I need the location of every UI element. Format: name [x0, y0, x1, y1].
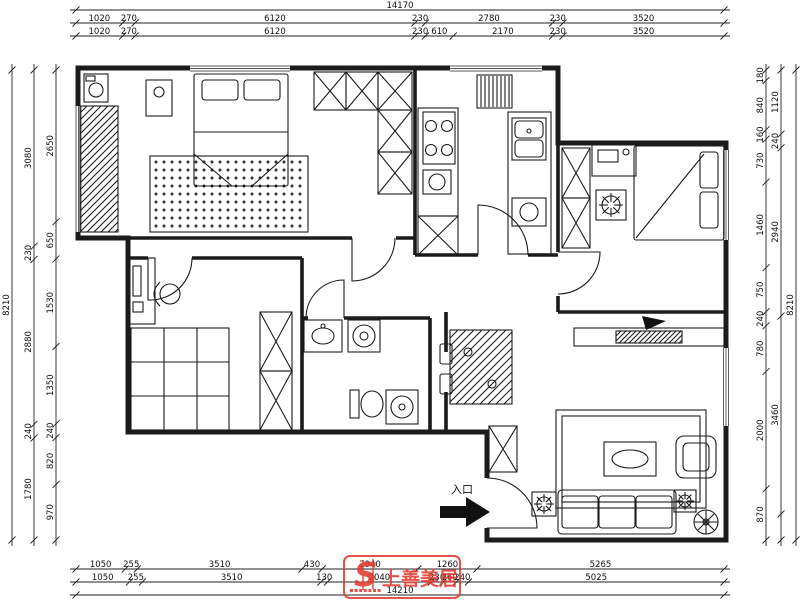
- dim-label: 14170: [386, 1, 413, 11]
- coffee-table-icon: [604, 442, 656, 476]
- dim-label: 870: [756, 506, 766, 522]
- dim-label: 240: [46, 423, 56, 439]
- cabinet-x-icon: [260, 312, 292, 371]
- dim-label: 130: [316, 573, 332, 583]
- cabinet-x-icon: [378, 110, 412, 152]
- door-bath: [306, 280, 344, 318]
- dim-label: 1050: [90, 560, 112, 570]
- cabinet-x-icon: [562, 198, 590, 248]
- dim-label: 650: [46, 232, 56, 248]
- chair-icon: [154, 282, 180, 306]
- bedroom-2: [562, 144, 724, 248]
- dimension-layer: 1417010202706120230278023035201020270612…: [2, 1, 800, 599]
- floorplan-drawing: 1417010202706120230278023035201020270612…: [0, 0, 800, 600]
- dining-area: [440, 330, 512, 404]
- dim-label: 8210: [786, 294, 796, 316]
- bookshelf-icon: [131, 328, 229, 430]
- nightstand-lamp-icon: [596, 190, 626, 220]
- dim-label: 6120: [264, 14, 286, 24]
- toilet-icon: [350, 390, 383, 418]
- dim-label: 230: [24, 245, 34, 261]
- dim-chain-top_row2: 1020270612023027802303520: [70, 14, 730, 27]
- dim-label: 1020: [89, 14, 111, 24]
- dim-label: 240: [24, 423, 34, 439]
- desk-icon: [592, 144, 636, 176]
- dim-chain-right_mid: 112024029403460: [771, 64, 785, 546]
- dim-chain-top_total: 14170: [70, 1, 730, 14]
- desk-icon: [129, 258, 155, 324]
- cabinet-x-icon: [260, 371, 292, 430]
- dim-label: 3510: [209, 560, 231, 570]
- dim-label: 2000: [756, 419, 766, 441]
- dim-label: 5265: [590, 560, 612, 570]
- dim-label: 6120: [264, 27, 286, 37]
- closet-hatch: [80, 106, 118, 232]
- kitchen-appliance-icon: [512, 198, 546, 226]
- side-table-icon: [146, 80, 172, 116]
- bathroom: [304, 320, 418, 424]
- dim-label: 5025: [585, 573, 607, 583]
- duct-x-icon: [418, 216, 458, 255]
- dim-chain-right_outer: 8210: [786, 64, 800, 546]
- dim-label: 1020: [89, 27, 111, 37]
- dim-label: 1120: [771, 91, 781, 113]
- living-room: [489, 316, 724, 534]
- cabinet-x-icon: [346, 72, 378, 110]
- sofa-icon: [558, 490, 676, 534]
- door-bedroom2: [558, 252, 600, 294]
- wardrobe-cabinets: [314, 72, 412, 194]
- kitchen: [418, 75, 551, 255]
- rug-dotted: [150, 156, 308, 232]
- door-master: [352, 238, 395, 281]
- lamp-table-icon: [674, 490, 696, 512]
- dim-label: 255: [128, 573, 144, 583]
- washing-machine-icon: [84, 74, 108, 102]
- sink-icon: [512, 118, 546, 160]
- dim-label: 780: [756, 341, 766, 357]
- dining-table-icon: [450, 330, 512, 404]
- plan-geometry: [74, 64, 730, 540]
- dim-label: 255: [123, 560, 139, 570]
- bed-icon: [634, 146, 724, 240]
- dim-chain-top_row3: 1020270612023061021702303520: [70, 27, 730, 40]
- cabinet-x-icon: [562, 148, 590, 198]
- dim-chain-left_inner: 265065015301350240820970: [46, 64, 60, 546]
- dim-label: 1780: [24, 478, 34, 500]
- tv-icon: [616, 331, 682, 343]
- dim-label: 730: [756, 153, 766, 169]
- dim-label: 820: [46, 453, 56, 469]
- dim-label: 1350: [46, 374, 56, 396]
- windows: [74, 64, 730, 426]
- round-sink-icon: [386, 390, 418, 424]
- study-room: [129, 258, 292, 430]
- armchair-icon: [676, 436, 716, 478]
- dim-label: 3080: [24, 147, 34, 169]
- master-bedroom: [80, 74, 308, 232]
- double-bed-icon: [194, 74, 288, 186]
- vanity-sink-icon: [304, 320, 342, 352]
- dim-chain-left_outer: 8210: [2, 64, 16, 546]
- cabinet-x-icon: [314, 72, 346, 110]
- dim-label: 240: [756, 311, 766, 327]
- cabinet-x-icon: [378, 72, 412, 110]
- dim-label: 2780: [478, 14, 500, 24]
- dim-label: 1460: [756, 214, 766, 236]
- fan-icon: [694, 510, 718, 534]
- dim-label: 2880: [24, 331, 34, 353]
- door-entry: [487, 478, 537, 528]
- stove-icon: [423, 112, 455, 164]
- kitchen-appliance-icon: [423, 170, 451, 194]
- dim-label: 240: [771, 133, 781, 149]
- entrance: 入口: [440, 483, 490, 527]
- dim-label: 2650: [46, 135, 56, 157]
- dim-label: 970: [46, 504, 56, 520]
- watermark-logo-icon: S: [354, 555, 378, 594]
- dim-label: 3520: [633, 14, 655, 24]
- dim-label: 610: [431, 27, 447, 37]
- dim-label: 8210: [2, 294, 12, 316]
- dim-label: 270: [121, 27, 137, 37]
- entrance-arrow-icon: [440, 497, 490, 527]
- dim-chain-right_inner: 18084016073014607502407802000870: [756, 64, 770, 546]
- cabinet-x-icon: [378, 152, 412, 194]
- dim-chain-left_mid: 308023028802401780: [24, 64, 38, 546]
- dim-label: 270: [121, 14, 137, 24]
- watermark-brand: 上善美居: [382, 567, 458, 590]
- dim-label: 2940: [771, 221, 781, 243]
- washer-icon: [348, 320, 380, 352]
- dim-label: 3460: [771, 404, 781, 426]
- dim-label: 180: [756, 67, 766, 83]
- entrance-label: 入口: [451, 483, 473, 496]
- dim-label: 750: [756, 282, 766, 298]
- fridge-icon: [477, 75, 512, 108]
- dim-label: 3510: [221, 573, 243, 583]
- dim-label: 2170: [492, 27, 514, 37]
- duct-x-icon: [489, 426, 517, 472]
- lamp-table-icon: [532, 492, 556, 516]
- floorplan-canvas: 1417010202706120230278023035201020270612…: [0, 0, 800, 600]
- dim-label: 430: [304, 560, 320, 570]
- dim-label: 840: [756, 97, 766, 113]
- dim-label: 1530: [46, 292, 56, 314]
- dim-label: 3520: [633, 27, 655, 37]
- dim-label: 1050: [92, 573, 114, 583]
